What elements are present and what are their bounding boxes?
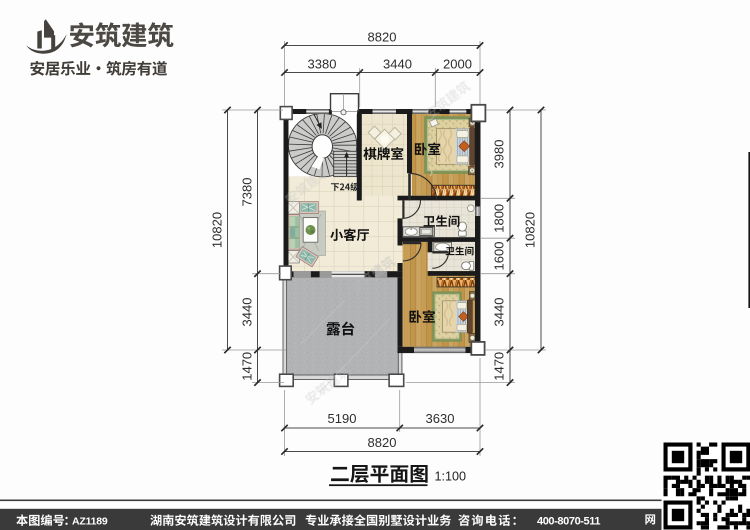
svg-text:8820: 8820 xyxy=(368,30,397,45)
svg-text:3630: 3630 xyxy=(426,411,455,426)
svg-text:1470: 1470 xyxy=(240,352,255,381)
svg-text:7380: 7380 xyxy=(240,178,255,207)
svg-text:10820: 10820 xyxy=(523,212,538,248)
svg-text:400-8070-511: 400-8070-511 xyxy=(537,515,600,527)
svg-text:3440: 3440 xyxy=(383,57,412,72)
svg-text:1:100: 1:100 xyxy=(435,470,467,484)
svg-text:3380: 3380 xyxy=(308,57,337,72)
svg-text:8820: 8820 xyxy=(368,435,397,450)
svg-text:2000: 2000 xyxy=(443,57,472,72)
svg-text:10820: 10820 xyxy=(210,212,225,248)
svg-text:5190: 5190 xyxy=(328,411,357,426)
svg-text:1470: 1470 xyxy=(492,352,507,381)
svg-text:3980: 3980 xyxy=(492,140,507,169)
svg-text:3440: 3440 xyxy=(240,298,255,327)
svg-text:AZ1189: AZ1189 xyxy=(72,515,108,527)
svg-text:1600: 1600 xyxy=(492,242,507,271)
svg-text:1800: 1800 xyxy=(492,204,507,233)
svg-text:3440: 3440 xyxy=(492,298,507,327)
